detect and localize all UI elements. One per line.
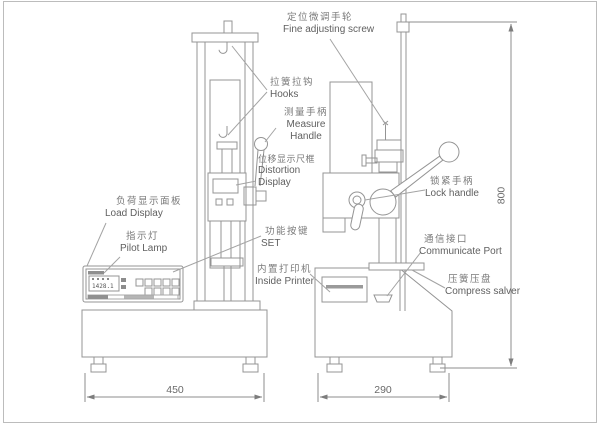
load-display-value: 1428.1 [92, 283, 114, 290]
press-plate [211, 258, 243, 266]
lower-rod [221, 221, 231, 258]
measuring-rod [401, 32, 406, 263]
right-foot-neck [433, 357, 442, 364]
printer-slot [326, 285, 363, 289]
clamp-knob [256, 191, 266, 201]
label-fine-adjusting-screw-en: Fine adjusting screw [283, 24, 374, 36]
load-display-panel: 1428.1 [83, 266, 183, 302]
leader-measure-handle [265, 128, 276, 142]
rod-tip [401, 14, 406, 22]
label-fine-adjusting-screw: 定位微调手轮 Fine adjusting screw [287, 12, 374, 36]
leader-set-keys [173, 236, 261, 272]
label-communicate-port: 通信接口 Communicate Port [419, 234, 502, 258]
left-foot-pad [91, 364, 106, 372]
head-column [379, 218, 396, 263]
label-inside-printer: 内置打印机 Inside Printer [255, 264, 314, 288]
dimension-290: 290 [367, 384, 399, 396]
mech-block [375, 150, 403, 162]
column-platform [194, 301, 260, 310]
upper-hook [219, 42, 227, 53]
leader-hooks-upper [232, 46, 267, 90]
measure-handle-ball [255, 138, 268, 151]
compress-salver-plate [369, 263, 424, 270]
right-base [315, 268, 452, 357]
press-rod [224, 266, 231, 301]
leader-load-display [87, 223, 106, 266]
label-fine-adjusting-screw-zh: 定位微调手轮 [287, 12, 374, 24]
pilot-lamp-led [121, 278, 126, 282]
label-load-display: 负荷显示面板 Load Display [105, 196, 182, 220]
dimension-800: 800 [496, 181, 509, 211]
label-pilot-lamp: 指示灯 Pilot Lamp [120, 231, 167, 255]
line-art: 1428.1 [0, 0, 600, 424]
label-distortion-display: 位移显示尺框 Distortion Display [258, 154, 315, 189]
dimension-450: 450 [159, 384, 191, 396]
column-right [245, 42, 253, 301]
label-hooks: 拉簧拉钩 Hooks [270, 77, 314, 101]
left-foot-pad [243, 364, 258, 372]
head-step [323, 218, 345, 232]
rod-cap [397, 22, 409, 32]
hook-stand-rods [222, 149, 232, 173]
label-compress-salver: 压簧压盘 Compress salver [445, 274, 520, 298]
leader-hooks-lower [228, 92, 267, 135]
distortion-display-unit [208, 173, 246, 221]
mech-block [377, 140, 401, 150]
panel-logo [88, 271, 104, 275]
label-set-keys: 功能按键 SET [261, 226, 309, 250]
mech-block [379, 162, 397, 172]
hook-stand [217, 142, 237, 149]
label-lock-handle: 锁紧手柄 Lock handle [425, 176, 479, 200]
right-foot-neck [330, 357, 339, 364]
label-measure-handle: 测量手柄 Measure Handle [277, 107, 335, 143]
lower-hook [219, 126, 227, 137]
crossbar [192, 33, 258, 42]
diagram-canvas: 1428.1 [0, 0, 600, 424]
left-foot-neck [94, 357, 103, 364]
left-foot-neck [246, 357, 255, 364]
lock-handle-ball [439, 142, 459, 162]
right-foot-pad [327, 364, 342, 372]
pilot-lamp-led [121, 285, 126, 289]
top-knob [224, 21, 232, 33]
left-base [82, 310, 267, 357]
